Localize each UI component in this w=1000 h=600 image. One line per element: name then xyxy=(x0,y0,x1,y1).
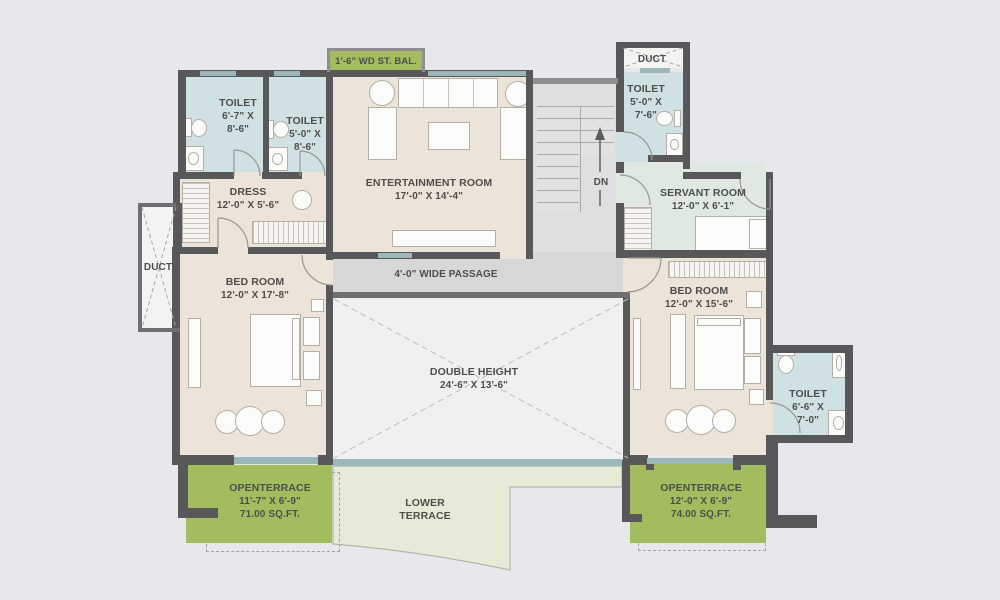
wall-segment xyxy=(326,70,333,260)
wall-segment xyxy=(333,292,630,298)
window xyxy=(378,253,412,258)
bed-symbol xyxy=(694,315,744,390)
label-toilet-bottom-right: TOILET 6'-6" X 7'-0" xyxy=(789,388,827,427)
wall-segment xyxy=(327,48,425,51)
wall-segment xyxy=(138,203,180,207)
stair-steps xyxy=(537,106,614,154)
pouf xyxy=(261,410,285,434)
wall-segment xyxy=(326,285,333,465)
sofa xyxy=(500,107,528,160)
label-toilet-top-left-1: TOILET 6'-7" X 8'-6" xyxy=(219,97,257,136)
door-patch xyxy=(616,173,624,203)
cupboard xyxy=(188,318,201,388)
label-servant-room: SERVANT ROOM 12'-0" X 6'-1" xyxy=(660,187,746,213)
nightstand xyxy=(303,317,320,346)
stair-steps xyxy=(537,154,579,212)
nightstand xyxy=(744,356,761,384)
pillow xyxy=(292,318,300,380)
sofa xyxy=(398,78,498,108)
wall-segment xyxy=(622,514,642,522)
wall-segment xyxy=(683,172,741,179)
stool xyxy=(292,190,312,210)
door-patch xyxy=(616,132,624,162)
label-duct-top-right: DUCT xyxy=(638,53,666,66)
pouf xyxy=(712,409,736,433)
pillow xyxy=(749,219,767,249)
wall-segment xyxy=(172,247,180,457)
wall-segment xyxy=(263,77,269,177)
door-patch xyxy=(218,247,248,254)
wall-segment xyxy=(616,203,624,252)
window xyxy=(234,457,318,464)
wash-basin xyxy=(267,147,288,171)
window xyxy=(200,71,236,76)
wall-segment xyxy=(333,252,500,259)
wall-segment xyxy=(138,203,142,332)
wall-segment xyxy=(648,155,690,162)
wall-segment xyxy=(178,70,186,177)
wall-segment xyxy=(262,172,302,179)
label-dress: DRESS 12'-0" X 5'-6" xyxy=(217,186,279,212)
door-patch xyxy=(741,172,766,179)
lamp xyxy=(306,390,322,406)
wall-segment xyxy=(766,172,773,258)
wall-segment xyxy=(616,42,624,72)
wash-basin xyxy=(183,146,204,171)
wall-segment xyxy=(616,42,690,48)
side-table xyxy=(369,80,395,106)
label-entertainment-room: ENTERTAINMENT ROOM 17'-0" X 14'-4" xyxy=(366,177,492,203)
wardrobe xyxy=(624,207,652,253)
wall-segment xyxy=(845,345,853,443)
label-passage: 4'-0" WIDE PASSAGE xyxy=(394,268,497,281)
window xyxy=(647,458,733,464)
wall-segment xyxy=(623,294,630,465)
wall-segment xyxy=(683,42,690,169)
pillow xyxy=(697,318,741,326)
wall-segment xyxy=(616,162,624,173)
wall-segment xyxy=(622,460,630,522)
window xyxy=(274,71,300,76)
wardrobe xyxy=(182,182,210,243)
label-lower-terrace: LOWER TERRACE xyxy=(399,497,450,523)
label-toilet-top-right: TOILET 5'-0" X 7'-6" xyxy=(627,83,665,122)
wc-icon xyxy=(191,119,207,137)
wash-basin xyxy=(666,133,683,156)
door-patch xyxy=(623,258,630,294)
coffee-table xyxy=(428,122,470,150)
wall-segment xyxy=(138,328,180,332)
stair-divider xyxy=(580,106,581,212)
window xyxy=(640,68,670,73)
wall-segment xyxy=(422,48,425,72)
lamp xyxy=(311,299,324,312)
nightstand xyxy=(303,351,320,380)
wall-segment xyxy=(533,78,618,84)
wall-segment xyxy=(766,435,778,517)
label-open-terrace-right: OPENTERRACE 12'-0" X 6'-9" 74.00 SQ.FT. xyxy=(660,482,742,521)
label-stairs-dn: DN xyxy=(594,176,609,189)
wall-segment xyxy=(766,352,773,400)
wall-segment xyxy=(178,172,234,179)
wall-segment xyxy=(178,508,218,518)
door-patch xyxy=(234,172,262,179)
wall-segment xyxy=(766,515,817,528)
wall-segment xyxy=(733,458,741,470)
sofa xyxy=(368,107,397,160)
wc-tank xyxy=(674,110,681,127)
door-patch xyxy=(302,172,326,179)
door-patch xyxy=(766,400,773,435)
label-open-terrace-left: OPENTERRACE 11'-7" X 6'-9" 71.00 SQ.FT. xyxy=(229,482,311,521)
wardrobe-bench xyxy=(252,221,328,244)
label-double-height: DOUBLE HEIGHT 24'-6" X 13'-6" xyxy=(430,366,518,392)
wall-segment xyxy=(766,258,773,352)
wall-segment xyxy=(327,48,330,72)
label-bedroom-left: BED ROOM 12'-0" X 17'-8" xyxy=(221,276,289,302)
wardrobe xyxy=(633,318,641,390)
wall-segment xyxy=(773,435,853,443)
window xyxy=(428,71,526,76)
wall-segment xyxy=(326,247,333,255)
label-toilet-top-left-2: TOILET 5'-0" X 8'-6" xyxy=(286,115,324,154)
label-bedroom-right: BED ROOM 12'-0" X 15'-6" xyxy=(665,285,733,311)
lamp xyxy=(749,389,764,405)
wall-segment xyxy=(616,250,773,258)
wall-segment xyxy=(248,247,333,254)
wardrobe xyxy=(668,261,768,278)
floor-plan: TOILET 6'-7" X 8'-6" TOILET 5'-0" X 8'-6… xyxy=(0,0,1000,600)
nightstand xyxy=(744,318,761,354)
wc-icon xyxy=(778,355,794,374)
door-patch xyxy=(500,252,526,259)
lamp xyxy=(746,291,762,308)
tv-console xyxy=(392,230,496,247)
wall-segment xyxy=(526,70,533,259)
wall-segment xyxy=(176,203,182,247)
window xyxy=(333,459,622,466)
wall-segment xyxy=(773,345,853,353)
label-duct-left: DUCT xyxy=(144,261,172,274)
dresser xyxy=(670,314,686,389)
label-wd-st-balcony: 1'-6" WD ST. BAL. xyxy=(335,55,417,68)
